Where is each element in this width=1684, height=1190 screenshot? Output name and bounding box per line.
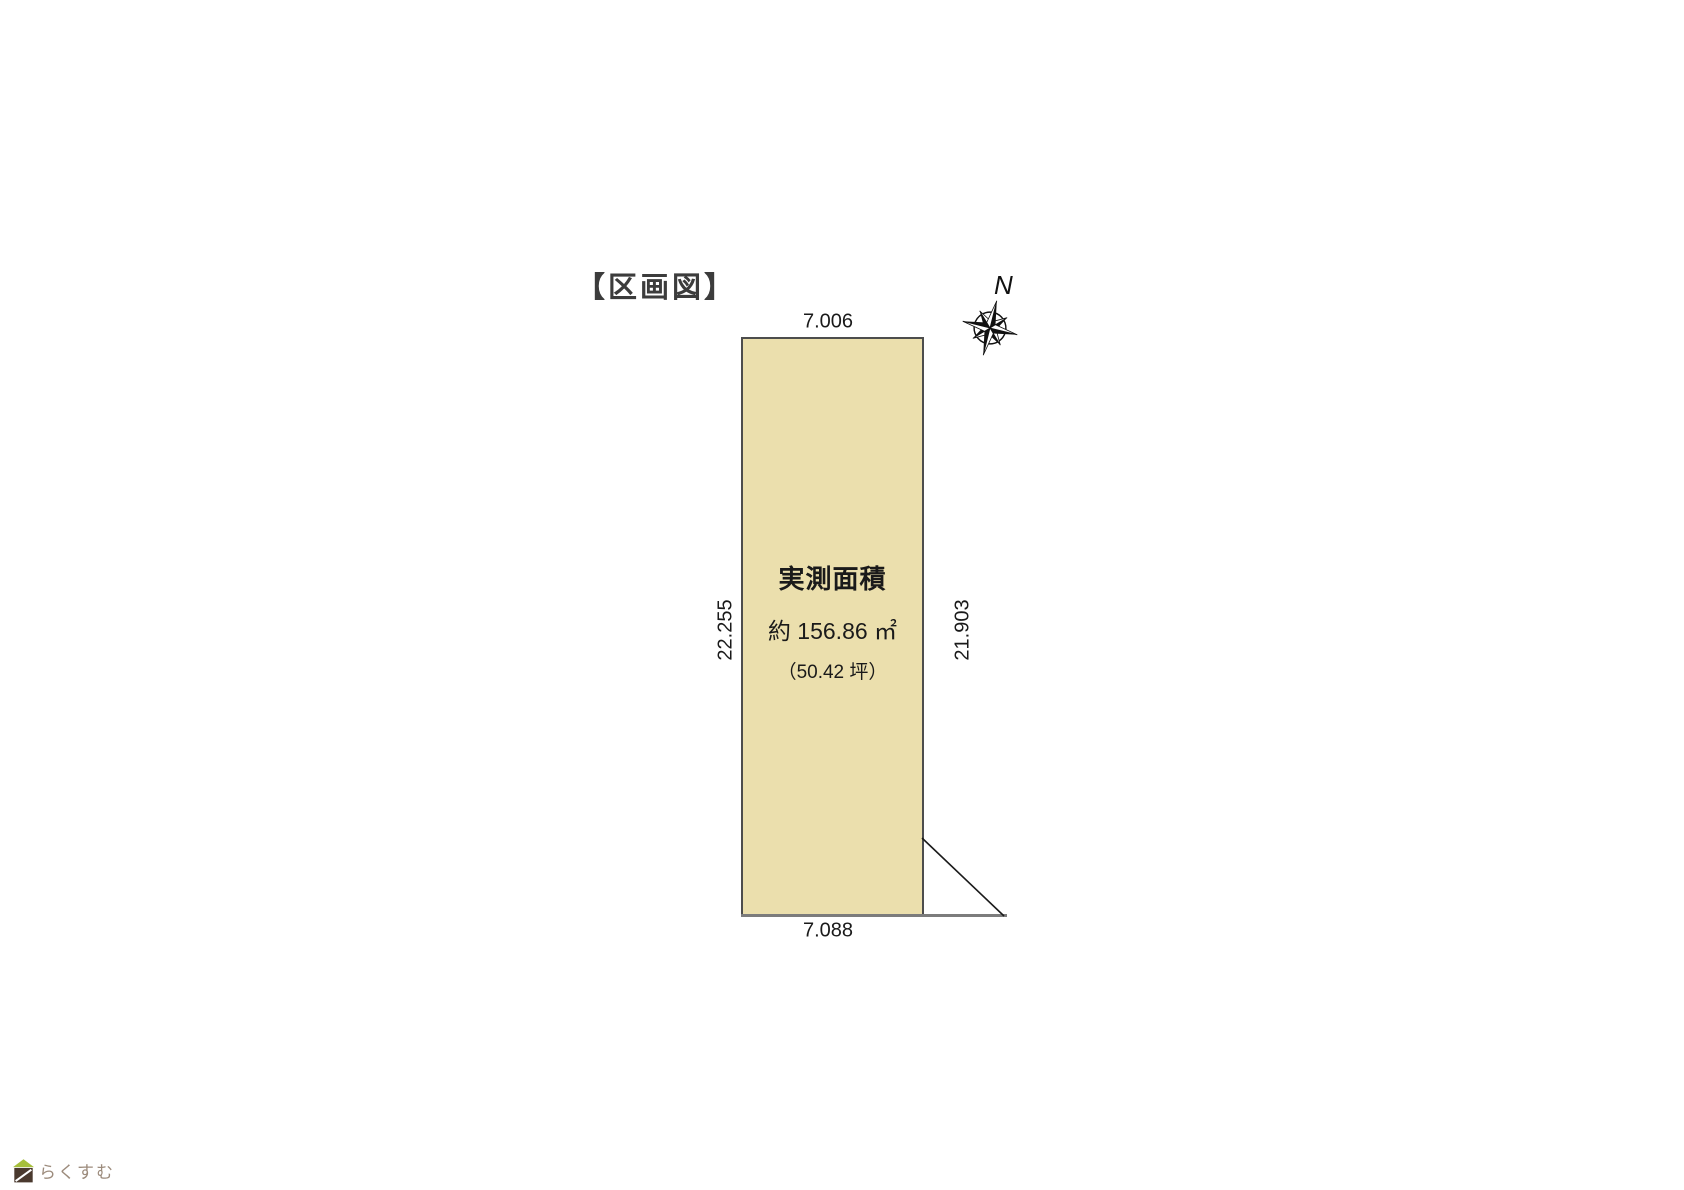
dimension-bottom: 7.088	[803, 920, 853, 943]
page-title: 【区画図】	[576, 264, 736, 306]
house-logo-icon	[13, 1159, 34, 1183]
brand-name: らくすむ	[39, 1158, 115, 1183]
brand-logo: らくすむ	[13, 1158, 115, 1183]
dimension-top: 7.006	[803, 311, 853, 334]
area-title: 実測面積	[741, 559, 924, 596]
compass-rose-icon	[961, 299, 1019, 357]
area-info: 実測面積 約 156.86 ㎡ （50.42 坪）	[741, 559, 924, 684]
corner-cut-triangle	[918, 834, 1010, 918]
plot-map-page: 【区画図】 N	[0, 0, 1684, 1190]
north-label: N	[994, 270, 1013, 301]
area-tsubo: （50.42 坪）	[741, 657, 924, 684]
area-square-meters: 約 156.86 ㎡	[741, 612, 924, 646]
dimension-left: 22.255	[715, 599, 738, 660]
dimension-right: 21.903	[952, 599, 975, 660]
